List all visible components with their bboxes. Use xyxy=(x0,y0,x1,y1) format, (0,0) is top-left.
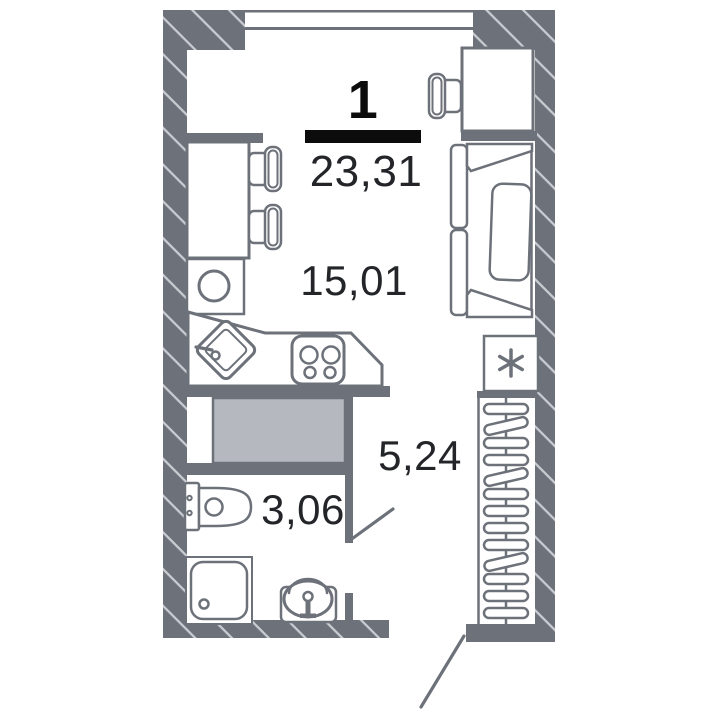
bottom-right-wall xyxy=(466,624,535,642)
apartment-number: 1 xyxy=(348,73,379,127)
hallway-area-label: 5,24 xyxy=(378,435,462,477)
top-left-wall xyxy=(163,10,245,50)
left-wall xyxy=(163,10,187,638)
window-inner-line xyxy=(245,27,473,30)
washing-machine xyxy=(187,259,244,314)
right-wall xyxy=(535,10,555,642)
desk xyxy=(462,48,533,131)
entrance-door-swing xyxy=(421,636,464,707)
closet-box xyxy=(213,398,345,463)
window-outer-line xyxy=(245,10,473,13)
bathroom-door-swing xyxy=(349,509,393,541)
wardrobe xyxy=(479,398,529,625)
living-room-area-label: 15,01 xyxy=(300,260,408,302)
shower-tray xyxy=(186,557,252,624)
chair-icon xyxy=(249,147,281,191)
window xyxy=(245,10,473,50)
chair-icon xyxy=(429,74,461,118)
header-divider-bar xyxy=(305,130,421,143)
bathroom-area-label: 3,06 xyxy=(261,489,345,531)
total-area-label: 23,31 xyxy=(310,150,423,194)
kitchen-base-wall xyxy=(183,386,390,397)
floorplan-canvas: 1 23,31 15,01 5,24 3,06 xyxy=(0,0,720,720)
bathroom-sink xyxy=(281,579,336,622)
bathroom-right-stub xyxy=(345,593,353,622)
bathroom-right-wall xyxy=(345,475,353,543)
toilet xyxy=(185,483,251,530)
fridge xyxy=(484,336,538,391)
dining-table xyxy=(187,142,249,258)
bathroom-top-wall xyxy=(187,463,353,475)
stove xyxy=(292,336,344,384)
chair-icon xyxy=(249,205,281,249)
sofa xyxy=(451,144,532,317)
